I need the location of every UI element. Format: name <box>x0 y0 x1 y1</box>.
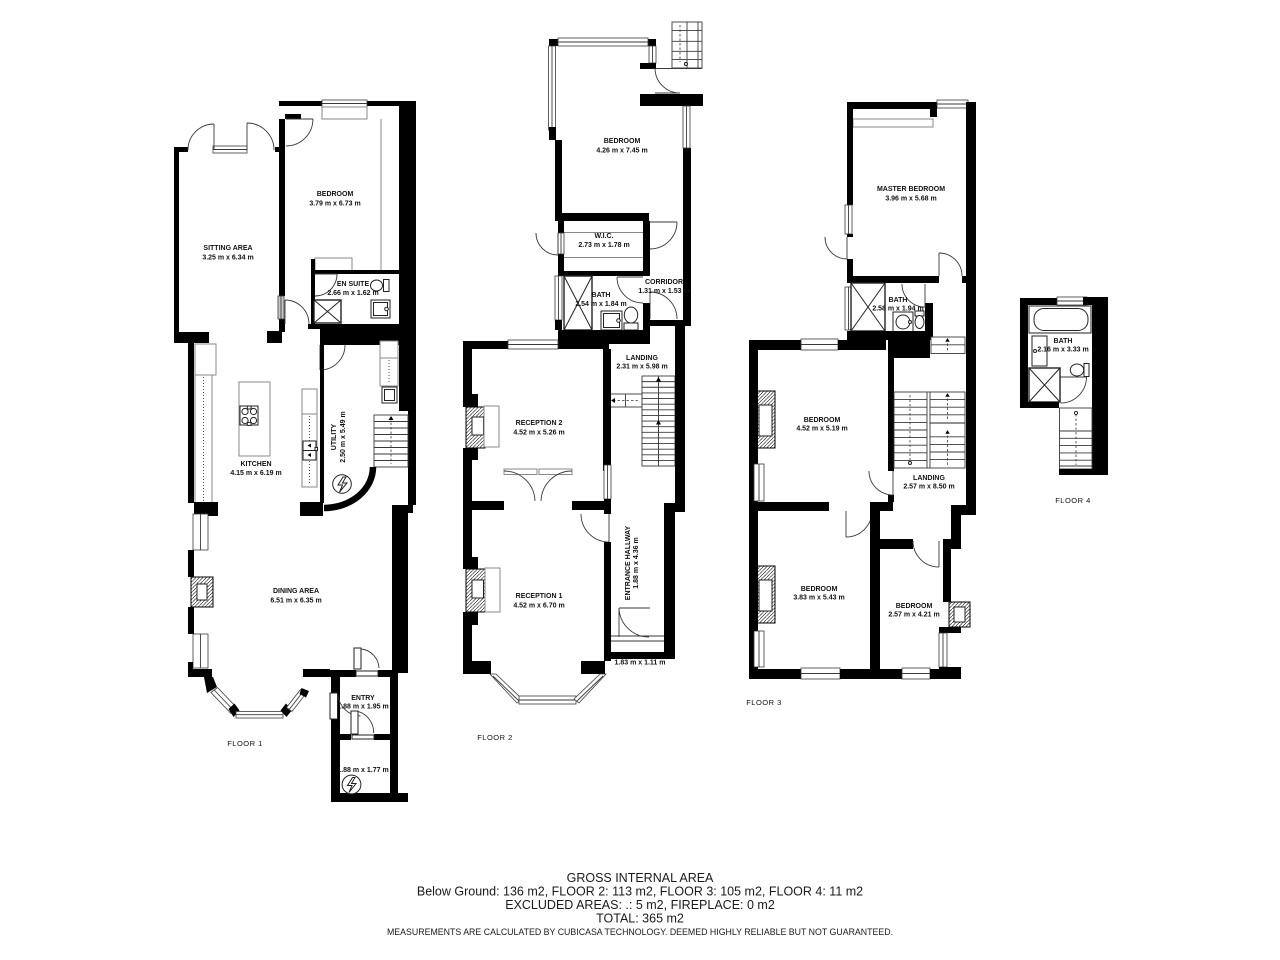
svg-text:KITCHEN: KITCHEN <box>240 461 271 468</box>
svg-text:6.51 m x 6.35 m: 6.51 m x 6.35 m <box>270 598 321 605</box>
svg-text:MEASUREMENTS ARE CALCULATED BY: MEASUREMENTS ARE CALCULATED BY CUBICASA … <box>387 927 893 937</box>
svg-text:GROSS INTERNAL AREA: GROSS INTERNAL AREA <box>567 871 714 885</box>
svg-text:2.16 m x 3.33 m: 2.16 m x 3.33 m <box>1037 347 1088 354</box>
svg-text:TOTAL: 365 m2: TOTAL: 365 m2 <box>596 912 684 926</box>
svg-text:LANDING: LANDING <box>913 475 945 482</box>
svg-text:BEDROOM: BEDROOM <box>804 417 841 424</box>
svg-text:ENTRANCE HALLWAY: ENTRANCE HALLWAY <box>625 525 632 600</box>
svg-text:3.96 m x 5.68 m: 3.96 m x 5.68 m <box>885 196 936 203</box>
svg-text:4.52 m x 5.26 m: 4.52 m x 5.26 m <box>513 430 564 437</box>
svg-text:FLOOR 3: FLOOR 3 <box>746 698 782 707</box>
svg-text:BEDROOM: BEDROOM <box>801 586 838 593</box>
svg-text:BEDROOM: BEDROOM <box>317 191 354 198</box>
svg-text:BEDROOM: BEDROOM <box>604 138 641 145</box>
svg-text:SITTING AREA: SITTING AREA <box>203 245 252 252</box>
svg-text:W.I.C.: W.I.C. <box>594 233 613 240</box>
svg-text:1.88 m x 1.77 m: 1.88 m x 1.77 m <box>337 767 388 774</box>
svg-text:1.88 m x 1.95 m: 1.88 m x 1.95 m <box>337 704 388 711</box>
svg-text:FLOOR 4: FLOOR 4 <box>1055 496 1091 505</box>
svg-text:FLOOR 2: FLOOR 2 <box>477 733 513 742</box>
svg-text:MASTER BEDROOM: MASTER BEDROOM <box>877 186 945 193</box>
svg-text:2.73 m x 1.78 m: 2.73 m x 1.78 m <box>578 242 629 249</box>
svg-text:RECEPTION 2: RECEPTION 2 <box>516 420 563 427</box>
svg-text:EN SUITE: EN SUITE <box>337 281 370 288</box>
svg-text:2.58 m x 1.94 m: 2.58 m x 1.94 m <box>872 306 923 313</box>
svg-text:4.15 m x 6.19 m: 4.15 m x 6.19 m <box>230 470 281 477</box>
svg-text:1.88 m x 4.36 m: 1.88 m x 4.36 m <box>633 537 640 588</box>
svg-text:BATH: BATH <box>1054 338 1073 345</box>
svg-text:RECEPTION 1: RECEPTION 1 <box>516 593 563 600</box>
svg-text:3.83 m x 5.43 m: 3.83 m x 5.43 m <box>793 595 844 602</box>
svg-text:BEDROOM: BEDROOM <box>896 603 933 610</box>
svg-text:2.54 m x 1.84 m: 2.54 m x 1.84 m <box>575 301 626 308</box>
svg-text:1.31 m x 1.53 m: 1.31 m x 1.53 m <box>638 288 689 295</box>
svg-text:2.57 m x 4.21 m: 2.57 m x 4.21 m <box>888 612 939 619</box>
svg-text:BATH: BATH <box>889 297 908 304</box>
svg-text:BATH: BATH <box>592 292 611 299</box>
svg-text:2.31 m x 5.98 m: 2.31 m x 5.98 m <box>616 364 667 371</box>
svg-text:Below Ground: 136 m2, FLOOR 2:: Below Ground: 136 m2, FLOOR 2: 113 m2, F… <box>417 885 863 899</box>
svg-text:ENTRY: ENTRY <box>351 695 375 702</box>
svg-text:CORRIDOR: CORRIDOR <box>645 279 683 286</box>
svg-text:2.66 m x 1.62 m: 2.66 m x 1.62 m <box>327 290 378 297</box>
svg-text:4.52 m x 6.70 m: 4.52 m x 6.70 m <box>513 603 564 610</box>
svg-text:2.57 m x 8.50 m: 2.57 m x 8.50 m <box>903 484 954 491</box>
svg-text:UTILITY: UTILITY <box>331 423 338 450</box>
svg-text:1.83 m x 1.11 m: 1.83 m x 1.11 m <box>615 660 666 667</box>
svg-text:LANDING: LANDING <box>626 355 658 362</box>
svg-text:4.52 m x 5.19 m: 4.52 m x 5.19 m <box>796 426 847 433</box>
svg-text:EXCLUDED AREAS: .: 5 m2, FIREP: EXCLUDED AREAS: .: 5 m2, FIREPLACE: 0 m2 <box>505 898 775 912</box>
svg-text:2.50 m x 5.49 m: 2.50 m x 5.49 m <box>340 411 347 462</box>
svg-text:3.25 m x 6.34 m: 3.25 m x 6.34 m <box>202 255 253 262</box>
svg-text:FLOOR 1: FLOOR 1 <box>227 739 263 748</box>
svg-text:DINING AREA: DINING AREA <box>273 588 319 595</box>
svg-text:3.79 m x 6.73 m: 3.79 m x 6.73 m <box>309 201 360 208</box>
svg-text:4.26 m x 7.45 m: 4.26 m x 7.45 m <box>596 148 647 155</box>
